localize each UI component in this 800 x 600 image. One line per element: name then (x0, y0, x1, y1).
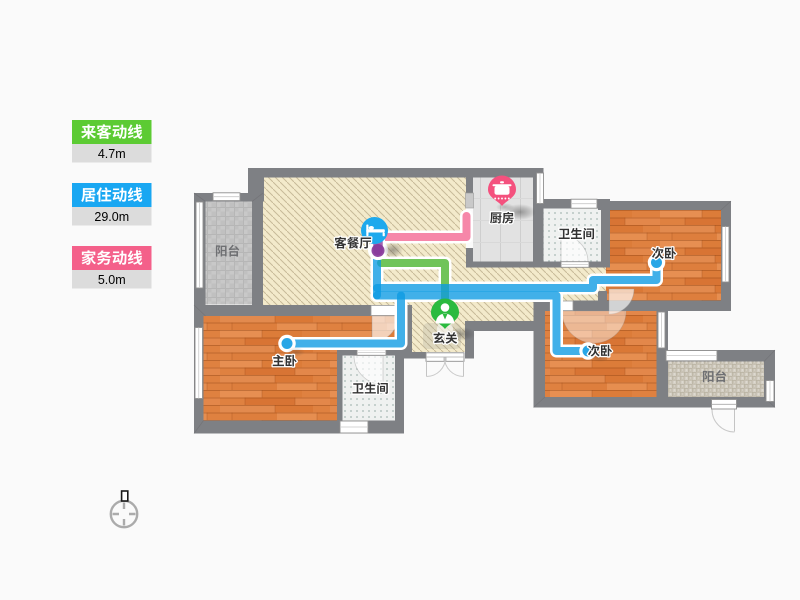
svg-text:29.0m: 29.0m (94, 210, 129, 224)
svg-text:4.7m: 4.7m (98, 147, 126, 161)
svg-text:5.0m: 5.0m (98, 273, 126, 287)
